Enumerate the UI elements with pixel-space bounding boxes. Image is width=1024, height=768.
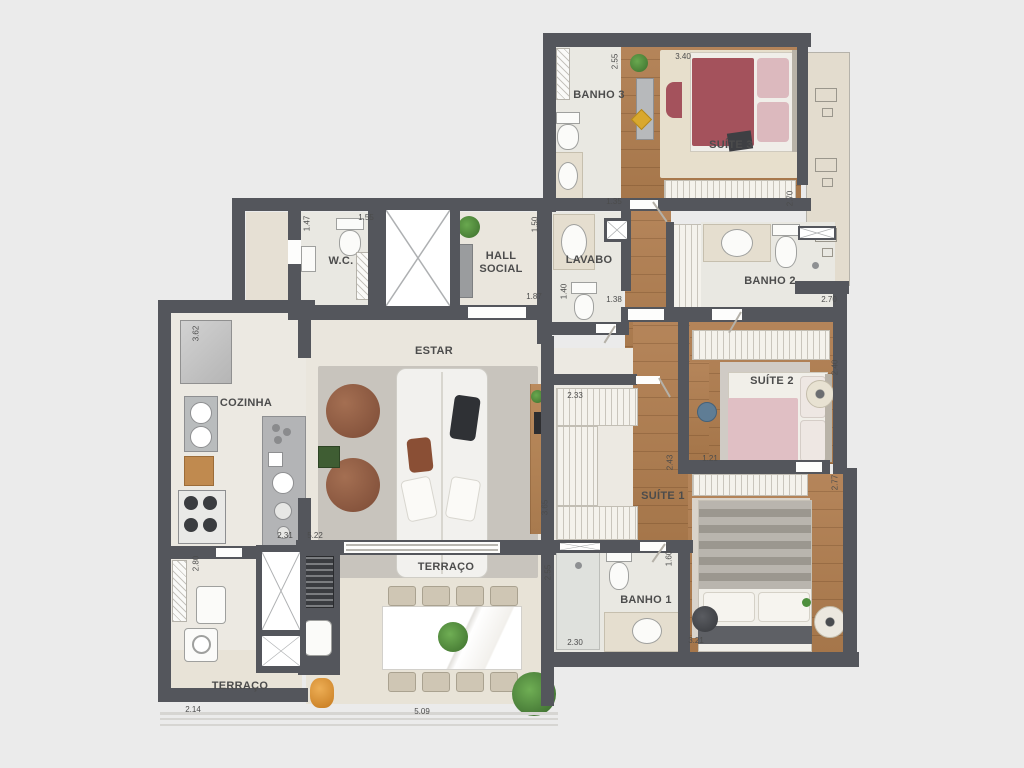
shaft-icon [262, 552, 300, 630]
ac-unit-icon [822, 248, 833, 257]
wall-segment [158, 546, 270, 559]
banho2-window [798, 226, 836, 240]
suite3-plant-icon [630, 54, 648, 72]
wall-segment [678, 318, 689, 468]
wall-segment [666, 222, 674, 320]
wall-segment [553, 374, 637, 385]
lavabo-toilet-bowl [574, 294, 594, 320]
ac-unit-icon [822, 178, 833, 187]
gourmet-sink-icon [304, 620, 332, 656]
dimension: 2.40 [831, 353, 840, 383]
banho2-sink-icon [721, 229, 753, 257]
wall-segment [543, 33, 811, 47]
dimension: 3.40 [668, 52, 698, 61]
dining-chair [388, 672, 416, 692]
banho1-sink-icon [632, 618, 662, 644]
railing [160, 718, 558, 720]
dimension: 2.31 [270, 531, 300, 540]
table-plant-icon [438, 622, 468, 652]
hall-plant-icon [458, 216, 480, 238]
sliding-door-track [346, 549, 498, 551]
dimension: 1.55 [351, 213, 381, 222]
island-item [274, 502, 292, 520]
dimension: 2.70 [814, 295, 844, 304]
room-label-estar: ESTAR [389, 345, 479, 358]
dimension: 1.35 [599, 197, 629, 206]
dimension: 2.55 [544, 558, 553, 588]
banho3-toilet-icon [556, 112, 580, 124]
dining-chair [490, 586, 518, 606]
dimension: 1.47 [303, 209, 312, 239]
lavabo-shaft-icon [604, 218, 630, 242]
island-item [283, 428, 291, 436]
wall-segment [843, 468, 857, 666]
dimension: 1.60 [665, 544, 674, 574]
dimension: 2.77 [831, 468, 840, 498]
wall-segment [298, 312, 311, 358]
island-sink-icon [272, 472, 294, 494]
suite2-blanket [728, 398, 798, 462]
dining-chair [422, 672, 450, 692]
banho2-drain-icon [812, 262, 819, 269]
floor-plan: BANHO 3 SUÍTE 3 W.C. HALL SOCIAL LAVABO … [0, 0, 1024, 768]
dimension: 3.62 [192, 319, 201, 349]
railing [160, 712, 558, 715]
banho1-toilet-bowl [609, 562, 629, 590]
kitchen-door [216, 548, 242, 557]
dimension: 1.87 [519, 292, 549, 301]
suite3-console [636, 78, 654, 140]
banho2-toilet-icon [772, 224, 800, 236]
estar-plant-icon [318, 446, 340, 468]
suite2-pillow [800, 420, 826, 462]
banho1-window [558, 541, 602, 552]
room-label-banho1: BANHO 1 [601, 594, 691, 607]
room-label-banho3: BANHO 3 [554, 89, 644, 102]
island-item [274, 436, 282, 444]
suite1-closet [556, 506, 638, 540]
fridge-icon [180, 320, 232, 384]
wall-segment [158, 300, 171, 702]
banho3-sink-icon [558, 162, 578, 190]
hall-to-estar-opening [468, 307, 526, 318]
dimension: 1.21 [695, 454, 725, 463]
sculpture-icon [310, 678, 334, 708]
shaft-icon [262, 636, 300, 666]
dimension: 5.09 [407, 707, 437, 716]
island-item [272, 424, 280, 432]
dining-chair [456, 586, 484, 606]
vestibule-floor [246, 212, 290, 304]
cutting-board-icon [184, 456, 214, 486]
room-label-hall-social: HALL SOCIAL [469, 250, 533, 275]
grill-icon [304, 556, 334, 608]
wall-segment [543, 33, 556, 212]
corridor-opening [628, 309, 664, 320]
room-label-cozinha: COZINHA [201, 397, 291, 410]
hall-closet [672, 224, 702, 310]
elevator-icon [386, 210, 450, 306]
wall-segment [549, 322, 629, 335]
room-label-terraco-servico: TERRAÇO [195, 680, 285, 693]
island-item [268, 452, 283, 467]
burner-icon [184, 518, 198, 532]
washer-door [192, 635, 211, 654]
banho3-toilet-bowl [557, 124, 579, 150]
room-label-wc: W.C. [296, 255, 386, 268]
laundry-door-screen [172, 560, 187, 622]
dining-chair [388, 586, 416, 606]
suite1-closet [556, 426, 598, 506]
sliding-door-track [346, 544, 498, 546]
kitchen-sink-bowl [190, 426, 212, 448]
suite1-pouf-icon [692, 606, 718, 632]
armchair-icon [326, 384, 380, 438]
dimension: 5.22 [300, 531, 330, 540]
burner-icon [203, 496, 217, 510]
wall-segment [797, 47, 808, 185]
wall-segment [543, 198, 811, 211]
railing [160, 724, 558, 726]
dimension: 2.70 [786, 184, 795, 214]
suite2-door [796, 462, 822, 472]
room-label-banho2: BANHO 2 [725, 275, 815, 288]
suite1-lamp-icon [814, 606, 846, 638]
dimension: 2.33 [560, 391, 590, 400]
suite2-chair-icon [697, 402, 717, 422]
room-label-terraco: TERRAÇO [401, 561, 491, 574]
sofa-pillow-brown [406, 437, 433, 473]
room-label-suite3: SUÍTE 3 [686, 139, 776, 152]
burner-icon [184, 496, 198, 510]
ac-unit-icon [822, 108, 833, 117]
suite1-blanket [699, 501, 811, 589]
dimension: 3.65 [541, 493, 550, 523]
suite1-pillow [758, 592, 810, 622]
wall-segment [833, 293, 847, 474]
dining-chair [456, 672, 484, 692]
dimension: 2.30 [560, 638, 590, 647]
suite1-plant-icon [802, 598, 811, 607]
suite1-dresser [692, 474, 808, 496]
dimension: 2.43 [666, 448, 675, 478]
suite3-pouf [666, 82, 682, 118]
dimension: 1.40 [560, 277, 569, 307]
dimension: 2.14 [178, 705, 208, 714]
room-label-suite2: SUÍTE 2 [727, 375, 817, 388]
ac-unit-icon [815, 88, 837, 102]
wall-segment [232, 198, 245, 312]
suite1-headboard [698, 626, 812, 644]
dimension: 2.55 [611, 47, 620, 77]
dimension: 2.80 [192, 549, 201, 579]
lavabo-toilet-icon [571, 282, 597, 294]
wall-segment [541, 652, 859, 667]
dimension: 1.38 [599, 295, 629, 304]
banho2-toilet-bowl [775, 236, 797, 268]
dimension: 1.50 [531, 210, 540, 240]
dining-chair [422, 586, 450, 606]
room-label-suite1: SUÍTE 1 [618, 490, 708, 503]
laundry-tank-icon [196, 586, 226, 624]
suite1-door [636, 376, 660, 384]
burner-icon [203, 518, 217, 532]
dimension: 3.21 [681, 636, 711, 645]
banho1-shower-head [575, 562, 582, 569]
ac-unit-icon [815, 158, 837, 172]
suite2-wardrobe [692, 330, 830, 360]
suite3-pillow [757, 58, 789, 98]
suite3-pillow [757, 102, 789, 142]
room-label-lavabo: LAVABO [544, 254, 634, 267]
